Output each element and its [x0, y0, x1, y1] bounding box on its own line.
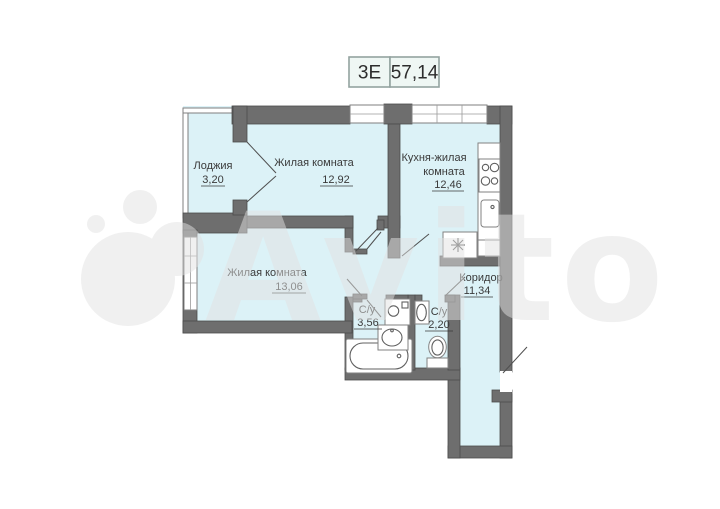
window-living1: [350, 105, 384, 123]
badge-area: 57,14: [391, 63, 439, 84]
kitchen-label-line2: комната: [423, 166, 465, 178]
toilet-tank: [427, 358, 448, 368]
watermark-text: Avito: [205, 182, 670, 356]
loggia-glazing-left: [183, 108, 188, 218]
watermark-logo-circle: [81, 232, 175, 326]
watermark-logo-circle: [87, 215, 105, 233]
kitchen-label-line1: Кухня-жилая: [401, 152, 466, 164]
watermark: Avito: [81, 182, 670, 356]
entrance-left-wall: [448, 368, 460, 458]
entrance-door-gap: [500, 371, 512, 392]
top-wall-left: [232, 106, 350, 124]
loggia-glazing-top: [183, 108, 233, 113]
loggia-pier-top: [233, 106, 247, 142]
title-badge: 3Е 57,14: [349, 57, 439, 87]
window-kitchen: [412, 105, 487, 123]
floor-plan-canvas: Лоджия 3,20 Жилая комната 12,92 Кухня-жи…: [0, 0, 720, 509]
living1-label: Жилая комната: [274, 157, 354, 169]
top-wall-pier: [384, 104, 412, 124]
watermark-logo-circle: [123, 190, 157, 224]
floor-plan-screenshot: Лоджия 3,20 Жилая комната 12,92 Кухня-жи…: [0, 0, 720, 509]
loggia-label: Лоджия: [194, 160, 233, 172]
badge-type: 3Е: [358, 63, 381, 84]
